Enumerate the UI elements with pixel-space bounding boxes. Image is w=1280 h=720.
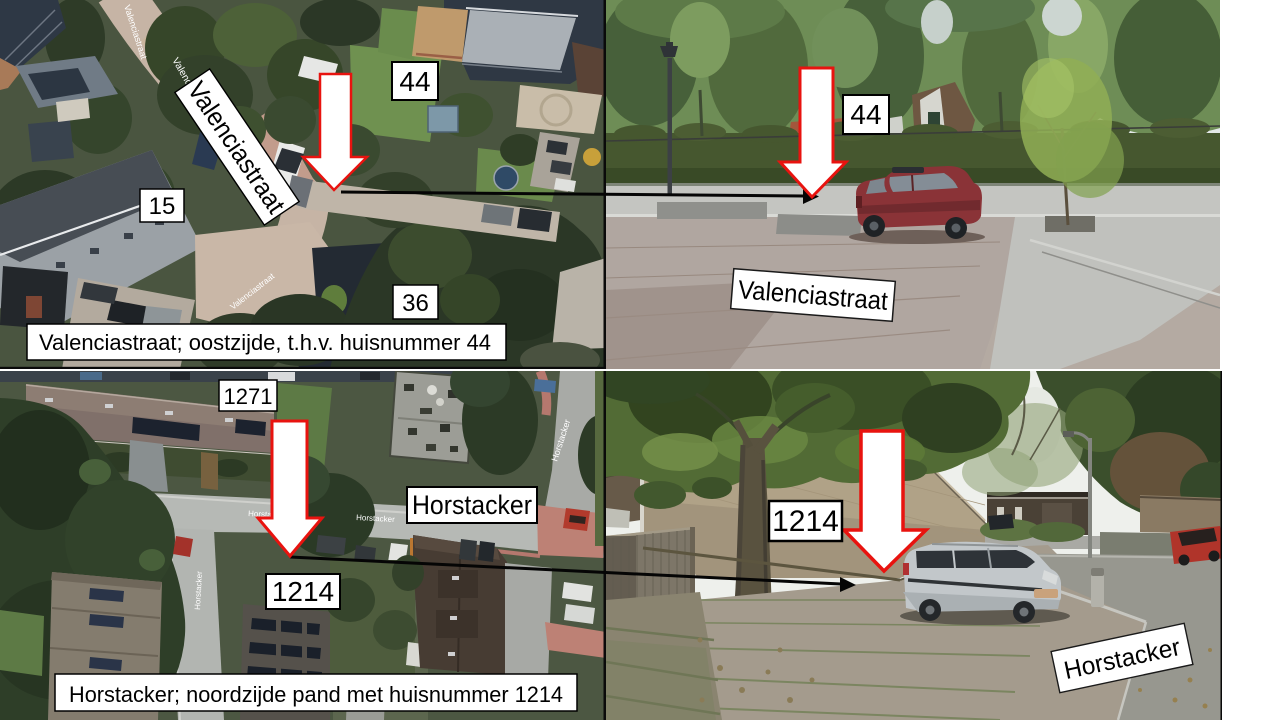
svg-text:Valenciastraat; oostzijde, t.h: Valenciastraat; oostzijde, t.h.v. huisnu… bbox=[39, 330, 491, 355]
svg-text:Horstacker: Horstacker bbox=[412, 490, 532, 520]
svg-text:44: 44 bbox=[850, 99, 881, 130]
svg-text:1214: 1214 bbox=[772, 505, 839, 538]
svg-text:1271: 1271 bbox=[224, 384, 273, 409]
svg-text:44: 44 bbox=[399, 66, 430, 97]
svg-text:15: 15 bbox=[149, 193, 176, 220]
svg-text:Horstacker; noordzijde pand me: Horstacker; noordzijde pand met huisnumm… bbox=[69, 682, 563, 707]
svg-text:1214: 1214 bbox=[272, 576, 334, 607]
svg-text:36: 36 bbox=[402, 290, 429, 317]
